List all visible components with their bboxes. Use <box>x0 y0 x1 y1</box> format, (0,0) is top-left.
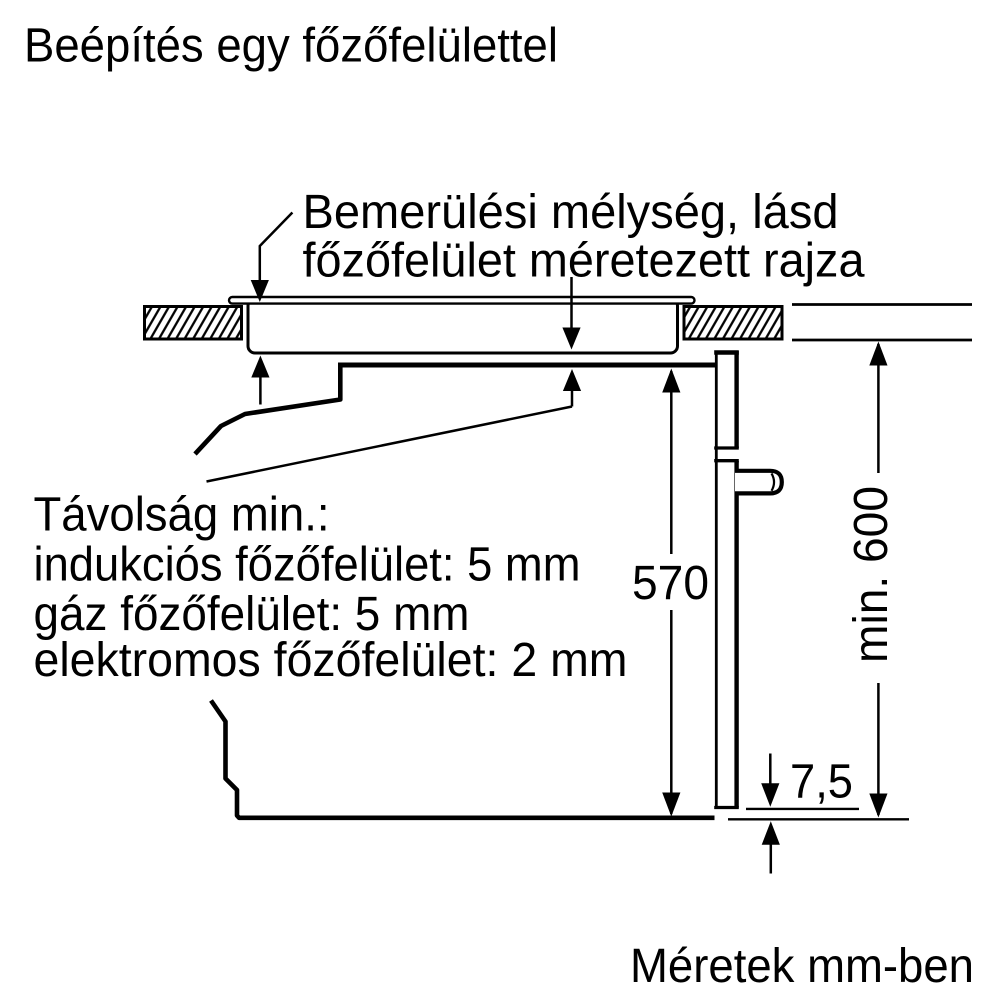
svg-text:elektromos főzőfelület: 2 mm: elektromos főzőfelület: 2 mm <box>34 634 628 687</box>
svg-text:570: 570 <box>632 557 709 610</box>
svg-text:Bemerülési mélység, lásd: Bemerülési mélység, lásd <box>303 186 839 239</box>
svg-text:indukciós főzőfelület: 5 mm: indukciós főzőfelület: 5 mm <box>34 539 581 592</box>
svg-text:főzőfelület méretezett rajza: főzőfelület méretezett rajza <box>303 235 865 288</box>
svg-text:7,5: 7,5 <box>790 756 853 809</box>
svg-text:Beépítés egy főzőfelülettel: Beépítés egy főzőfelülettel <box>24 20 558 73</box>
svg-text:min. 600: min. 600 <box>845 486 898 663</box>
svg-text:Távolság min.:: Távolság min.: <box>34 489 330 542</box>
svg-text:Méretek mm-ben: Méretek mm-ben <box>630 940 974 993</box>
